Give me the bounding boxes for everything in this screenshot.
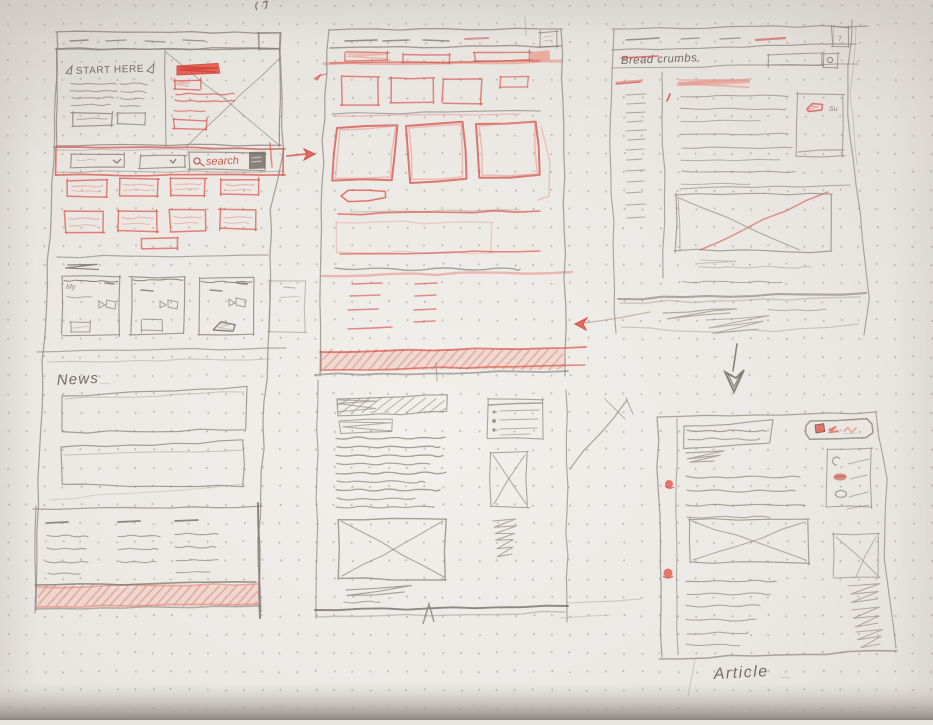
svg-text:Article: Article — [712, 663, 769, 683]
svg-text:News: News — [56, 370, 99, 389]
svg-text:My: My — [66, 284, 76, 291]
svg-text:7: 7 — [838, 36, 842, 43]
svg-text:search: search — [206, 155, 239, 168]
svg-text:Su: Su — [829, 106, 838, 113]
